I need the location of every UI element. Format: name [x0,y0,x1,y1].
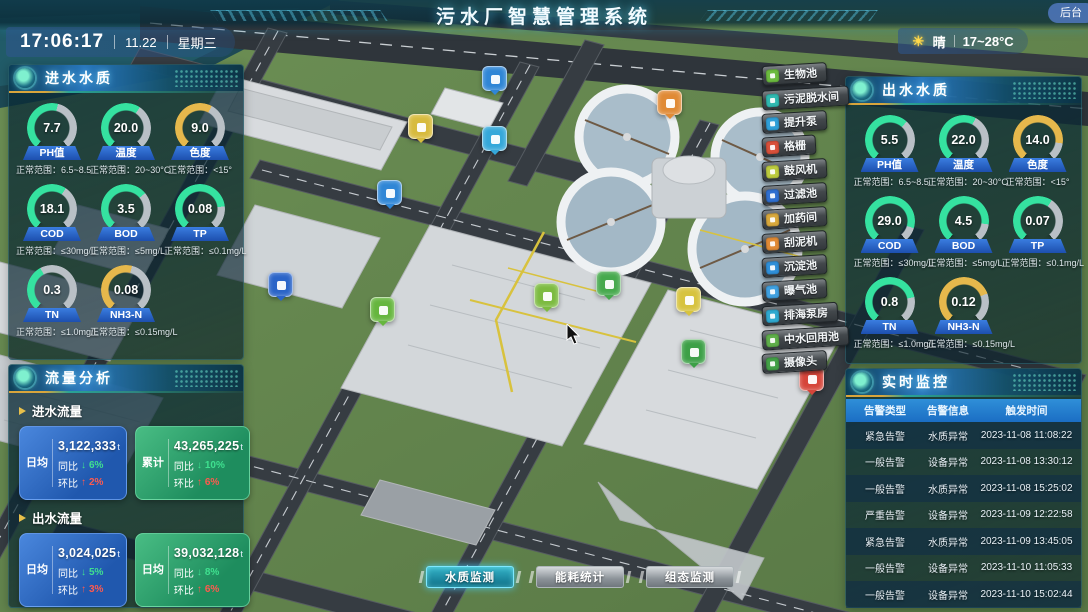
arrow-right-icon [19,514,26,522]
gauge-normal-range: 正常范围：20~30°C [90,163,162,176]
facility-button[interactable]: 鼓风机 [761,158,827,182]
quality-gauge: 14.0 色度 正常范围：<15° [1002,115,1074,188]
gauge-label: COD [23,227,81,241]
flow-card: 日均 3,122,333t 同比↓6% 环比↑2% [19,426,127,500]
alarm-info: 水质异常 [916,428,980,443]
facility-button[interactable]: 刮泥机 [761,230,827,254]
alarm-type: 紧急告警 [854,534,916,549]
sea-discharge-pump-icon [766,309,780,323]
flow-metric-label: 日均 [25,564,49,577]
gauge-label: NH3-N [935,320,993,334]
gauge-label: BOD [97,227,155,241]
flow-card: 累计 43,265,225t 同比↓10% 环比↑6% [135,426,250,500]
divider [168,546,169,594]
flow-group-label: 进水流量 [19,401,233,420]
facility-button[interactable]: 摄像头 [761,350,827,374]
gauge-normal-range: 正常范围：≤5mg/L [928,256,1000,269]
flow-metric-label: 日均 [25,457,49,470]
water-quality-monitor-button[interactable]: 水质监测 [426,566,514,588]
flow-unit: t [117,549,120,559]
weather-condition: 晴 [933,32,946,51]
camera-marker-1[interactable] [596,271,621,296]
alarm-row[interactable]: 紧急告警 水质异常 2023-11-09 13:45:05 [846,528,1081,555]
panel-header: 出水水质 [846,77,1081,103]
gauge-value: 0.3 [27,265,77,315]
current-weekday: 星期三 [178,33,217,52]
alarm-time: 2023-11-08 11:08:22 [980,430,1073,441]
alarm-table-body: 紧急告警 水质异常 2023-11-08 11:08:22 一般告警 设备异常 … [846,422,1081,608]
arrow-right-icon [19,407,26,415]
grille-icon [766,140,780,154]
alarm-info: 设备异常 [916,454,980,469]
gauge-normal-range: 正常范围：≤0.15mg/L [90,325,162,338]
page-title: 污水厂智慧管理系统 [436,2,652,29]
alarm-info: 设备异常 [916,507,980,522]
quality-gauge: 9.0 色度 正常范围：<15° [164,103,236,176]
gauge-value: 9.0 [175,103,225,153]
quality-gauge: 29.0 COD 正常范围：≤30mg/L [854,196,926,269]
alarm-type: 一般告警 [854,481,916,496]
gauge-value: 3.5 [101,184,151,234]
scraper-marker[interactable] [657,90,682,115]
facility-button[interactable]: 排海泵房 [761,302,838,327]
gauge-label: PH值 [861,158,919,172]
panel-header-icon [852,80,872,100]
blower-icon [766,164,780,178]
trend-arrow-icon: ↑ [81,584,86,595]
aeration-pool-icon [766,284,780,298]
app-header: 污水厂智慧管理系统 [0,0,1088,30]
trend-arrow-icon: ↓ [81,460,86,471]
alarm-row[interactable]: 紧急告警 水质异常 2023-11-08 11:08:22 [846,422,1081,449]
gauge-value: 5.5 [865,115,915,165]
quality-gauge: 18.1 COD 正常范围：≤30mg/L [16,184,88,257]
gauge-normal-range: 正常范围：<15° [164,163,236,176]
settling-pool-icon [766,260,780,274]
flow-group: 出水流量 日均 3,024,025t 同比↓5% 环比↑3% 日均 39,032… [19,508,233,607]
pump-marker[interactable] [482,126,507,151]
quality-gauge: 4.5 BOD 正常范围：≤5mg/L [928,196,1000,269]
alarm-type: 紧急告警 [854,428,916,443]
flow-value: 3,024,025 [58,546,116,560]
alarm-info: 水质异常 [916,534,980,549]
reclaimed-water-pool-icon [766,333,780,347]
gauge-value: 14.0 [1013,115,1063,165]
trend-arrow-icon: ↓ [81,567,86,578]
gauge-normal-range: 正常范围：6.5~8.5 [16,163,88,176]
divider [114,35,115,49]
gauge-label: PH值 [23,146,81,160]
alarm-type: 一般告警 [854,454,916,469]
lift-pump-icon [766,116,780,130]
trend-arrow-icon: ↓ [197,460,202,471]
dots-decoration [174,369,238,387]
bio-pool-icon [766,68,780,82]
dots-decoration [1012,81,1076,99]
backstage-button[interactable]: 后台 [1048,3,1088,23]
header-wing-left [210,10,388,21]
energy-stats-button[interactable]: 能耗统计 [536,566,624,588]
sun-icon [912,33,925,50]
quality-gauge: 0.12 NH3-N 正常范围：≤0.15mg/L [928,277,1000,350]
alarm-time: 2023-11-10 11:05:33 [980,562,1073,573]
gauge-normal-range: 正常范围：≤5mg/L [90,244,162,257]
alarm-table-header: 告警类型告警信息触发时间 [846,399,1081,422]
gauge-label: COD [861,239,919,253]
flow-group: 进水流量 日均 3,122,333t 同比↓6% 环比↑2% 累计 43,265… [19,401,233,500]
alarm-row[interactable]: 严重告警 设备异常 2023-11-09 12:22:58 [846,502,1081,529]
gauge-label: 温度 [97,146,155,160]
gauge-normal-range: 正常范围：≤1.0mg/L [854,337,926,350]
panel-title: 实时监控 [882,372,950,392]
gauge-value: 20.0 [101,103,151,153]
panel-header-icon [15,68,35,88]
yoy-stat: 同比↓6% [58,458,120,473]
gauge-label: 色度 [171,146,229,160]
divider [167,35,168,49]
flow-value: 43,265,225 [174,439,240,453]
gauge-label: BOD [935,239,993,253]
gauge-label: 色度 [1009,158,1067,172]
gauge-normal-range: 正常范围：≤0.1mg/L [1002,256,1074,269]
alarm-type: 一般告警 [854,587,916,602]
facility-button[interactable]: 曝气池 [761,278,827,302]
quality-gauge: 0.3 TN 正常范围：≤1.0mg/L [16,265,88,338]
quality-gauge: 0.07 TP 正常范围：≤0.1mg/L [1002,196,1074,269]
flow-groups: 进水流量 日均 3,122,333t 同比↓6% 环比↑2% 累计 43,265… [9,391,243,607]
divider [52,546,53,594]
yoy-stat: 同比↓8% [174,565,243,580]
quality-gauge: 0.08 TP 正常范围：≤0.1mg/L [164,184,236,257]
gauge-normal-range: 正常范围：≤1.0mg/L [16,325,88,338]
flow-group-name: 进水流量 [32,401,82,420]
flow-value: 39,032,128 [174,546,240,560]
reuse-pool-marker[interactable] [534,283,559,308]
quality-gauge: 3.5 BOD 正常范围：≤5mg/L [90,184,162,257]
gauge-normal-range: 正常范围：≤30mg/L [854,256,926,269]
flow-metric-label: 日均 [141,564,165,577]
alarm-time: 2023-11-09 12:22:58 [980,509,1073,520]
flow-cards: 日均 3,122,333t 同比↓6% 环比↑2% 累计 43,265,225t… [19,426,233,500]
alarm-info: 设备异常 [916,560,980,575]
gauge-label: 温度 [935,158,993,172]
yoy-stat: 同比↓10% [174,458,243,473]
gauge-label: NH3-N [97,308,155,322]
weather-temp-range: 17~28°C [963,34,1014,49]
panel-header: 进水水质 [9,65,243,91]
panel-title: 流量分析 [45,368,113,388]
bottom-nav: 水质监测 能耗统计 组态监测 [426,566,734,588]
panel-header: 流量分析 [9,365,243,391]
flow-unit: t [117,442,120,452]
camera-icon [766,356,780,370]
blower-marker-2[interactable] [676,287,701,312]
quality-gauge: 7.7 PH值 正常范围：6.5~8.5 [16,103,88,176]
flow-unit: t [240,442,243,452]
facility-button[interactable]: 格栅 [761,134,816,157]
gauge-value: 0.07 [1013,196,1063,246]
filter-marker[interactable] [268,272,293,297]
facility-button[interactable]: 生物池 [761,62,827,86]
bio-pool-marker[interactable] [370,297,395,322]
alarm-time: 2023-11-08 13:30:12 [980,456,1073,467]
panel-header-icon [852,372,872,392]
quality-gauge: 20.0 温度 正常范围：20~30°C [90,103,162,176]
clock-widget: 17:06:17 11.22 星期三 [6,27,235,57]
facility-button[interactable]: 沉淀池 [761,254,827,278]
panel-header: 实时监控 [846,369,1081,395]
trend-arrow-icon: ↑ [197,584,202,595]
gauge-value: 7.7 [27,103,77,153]
flow-card: 日均 39,032,128t 同比↓8% 环比↑6% [135,533,250,607]
gauge-normal-range: 正常范围：≤0.15mg/L [928,337,1000,350]
alarm-info: 设备异常 [916,587,980,602]
mom-stat: 环比↑2% [58,475,120,490]
facility-button[interactable]: 加药间 [761,206,827,230]
alarm-row[interactable]: 一般告警 设备异常 2023-11-10 15:02:44 [846,581,1081,608]
gauge-label: TP [1009,239,1067,253]
quality-gauge: 0.08 NH3-N 正常范围：≤0.15mg/L [90,265,162,338]
gauge-label: TN [861,320,919,334]
gauge-value: 4.5 [939,196,989,246]
flow-card: 日均 3,024,025t 同比↓5% 环比↑3% [19,533,127,607]
alarm-column-header: 告警信息 [916,403,980,418]
header-wing-right [700,10,878,21]
outlet-gauge-grid: 5.5 PH值 正常范围：6.5~8.5 22.0 温度 正常范围：20~30°… [846,103,1081,350]
facility-button[interactable]: 过滤池 [761,182,827,206]
facility-button[interactable]: 提升泵 [761,110,827,134]
mouse-cursor [566,324,582,346]
gauge-normal-range: 正常范围：≤30mg/L [16,244,88,257]
current-date: 11.22 [125,35,157,50]
monitoring-panel: 实时监控 告警类型告警信息触发时间 紧急告警 水质异常 2023-11-08 1… [845,368,1082,608]
facility-button[interactable]: 污泥脱水间 [761,85,849,110]
gauge-normal-range: 正常范围：<15° [1002,175,1074,188]
aeration-marker[interactable] [377,180,402,205]
gauge-label: TP [171,227,229,241]
scada-monitor-button[interactable]: 组态监测 [646,566,734,588]
alarm-column-header: 告警类型 [854,403,916,418]
gauge-label: TN [23,308,81,322]
trend-arrow-icon: ↓ [197,567,202,578]
gauge-value: 22.0 [939,115,989,165]
mom-stat: 环比↑6% [174,582,243,597]
gauge-normal-range: 正常范围：20~30°C [928,175,1000,188]
trend-arrow-icon: ↑ [81,477,86,488]
alarm-type: 严重告警 [854,507,916,522]
gauge-normal-range: 正常范围：≤0.1mg/L [164,244,236,257]
panel-title: 进水水质 [45,68,113,88]
gauge-value: 18.1 [27,184,77,234]
facility-button-list: 生物池 污泥脱水间 提升泵 格栅 鼓风机 过滤池 加药间 刮泥机 沉淀池 曝气池… [762,64,849,372]
quality-gauge: 22.0 温度 正常范围：20~30°C [928,115,1000,188]
flow-metric-label: 累计 [141,457,165,470]
current-time: 17:06:17 [20,31,104,53]
mom-stat: 环比↑3% [58,582,120,597]
yoy-stat: 同比↓5% [58,565,120,580]
divider [52,439,53,487]
divider [954,35,955,47]
flow-cards: 日均 3,024,025t 同比↓5% 环比↑3% 日均 39,032,128t… [19,533,233,607]
dosing-room-icon [766,212,780,226]
gauge-value: 0.08 [101,265,151,315]
trend-arrow-icon: ↑ [197,477,202,488]
dots-decoration [1012,373,1076,391]
camera-marker-2[interactable] [681,339,706,364]
dots-decoration [174,69,238,87]
inlet-gauge-grid: 7.7 PH值 正常范围：6.5~8.5 20.0 温度 正常范围：20~30°… [9,91,243,338]
quality-gauge: 0.8 TN 正常范围：≤1.0mg/L [854,277,926,350]
flow-analysis-panel: 流量分析 进水流量 日均 3,122,333t 同比↓6% 环比↑2% 累计 [8,364,244,608]
gauge-value: 0.8 [865,277,915,327]
alarm-info: 水质异常 [916,481,980,496]
gauge-value: 0.08 [175,184,225,234]
flow-value: 3,122,333 [58,439,116,453]
weather-widget: 晴 17~28°C [898,28,1028,54]
alarm-column-header: 触发时间 [980,403,1073,418]
mom-stat: 环比↑6% [174,475,243,490]
facility-button[interactable]: 中水回用池 [761,325,849,350]
outlet-quality-panel: 出水水质 5.5 PH值 正常范围：6.5~8.5 22.0 温度 正常范围：2… [845,76,1082,364]
alarm-row[interactable]: 一般告警 设备异常 2023-11-10 11:05:33 [846,555,1081,582]
alarm-row[interactable]: 一般告警 设备异常 2023-11-08 13:30:12 [846,449,1081,476]
gauge-value: 0.12 [939,277,989,327]
panel-header-icon [15,368,35,388]
blower-marker[interactable] [408,114,433,139]
gauge-value: 29.0 [865,196,915,246]
mud-scraper-icon [766,236,780,250]
flow-group-label: 出水流量 [19,508,233,527]
alarm-type: 一般告警 [854,560,916,575]
alarm-time: 2023-11-08 15:25:02 [980,483,1073,494]
gauge-normal-range: 正常范围：6.5~8.5 [854,175,926,188]
flow-group-name: 出水流量 [32,508,82,527]
sludge-dewatering-icon [766,93,780,107]
alarm-row[interactable]: 一般告警 水质异常 2023-11-08 15:25:02 [846,475,1081,502]
filter-pool-icon [766,188,780,202]
dashboard-root: 污水厂智慧管理系统 17:06:17 11.22 星期三 后台 晴 17~28°… [0,0,1088,612]
inlet-quality-panel: 进水水质 7.7 PH值 正常范围：6.5~8.5 20.0 温度 正常范围：2… [8,64,244,360]
alarm-time: 2023-11-09 13:45:05 [980,536,1073,547]
panel-title: 出水水质 [882,80,950,100]
alarm-time: 2023-11-10 15:02:44 [980,589,1073,600]
flow-unit: t [240,549,243,559]
quality-gauge: 5.5 PH值 正常范围：6.5~8.5 [854,115,926,188]
settling-tank-marker[interactable] [482,66,507,91]
divider [168,439,169,487]
